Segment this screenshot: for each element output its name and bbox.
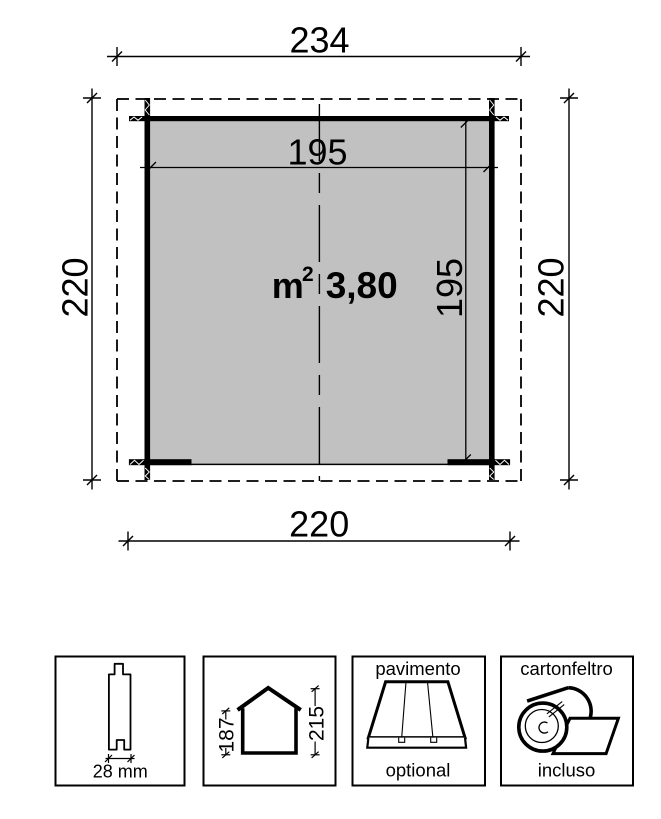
svg-text:187: 187 bbox=[215, 717, 238, 752]
svg-text:incluso: incluso bbox=[538, 760, 596, 781]
svg-text:195: 195 bbox=[429, 258, 470, 318]
svg-text:234: 234 bbox=[289, 19, 349, 60]
svg-text:cartonfeltro: cartonfeltro bbox=[520, 658, 613, 679]
svg-text:28 mm: 28 mm bbox=[93, 762, 148, 782]
svg-text:2: 2 bbox=[302, 263, 314, 286]
svg-text:220: 220 bbox=[55, 257, 96, 317]
svg-text:220: 220 bbox=[531, 257, 572, 317]
svg-text:220: 220 bbox=[289, 504, 349, 545]
svg-text:optional: optional bbox=[386, 760, 451, 781]
svg-text:3,80: 3,80 bbox=[326, 265, 398, 306]
svg-text:m: m bbox=[272, 265, 304, 306]
svg-text:195: 195 bbox=[287, 132, 347, 173]
svg-text:pavimento: pavimento bbox=[375, 658, 460, 679]
svg-text:215: 215 bbox=[306, 706, 329, 741]
